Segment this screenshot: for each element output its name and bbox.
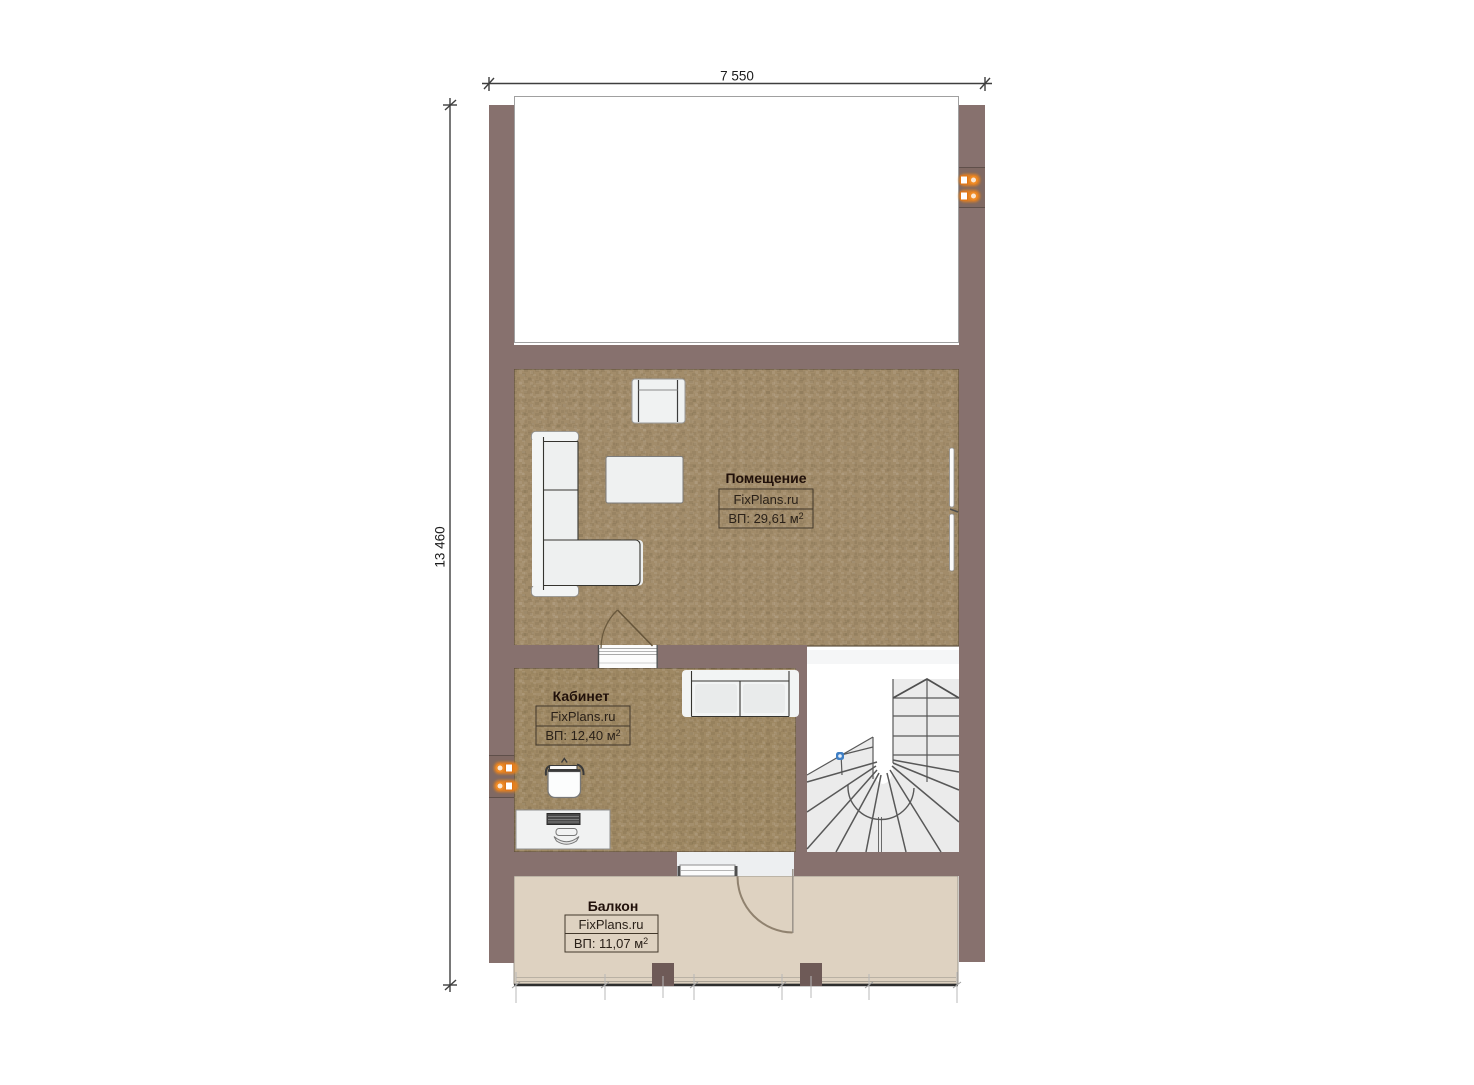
- svg-text:ВП: 29,61 м2: ВП: 29,61 м2: [728, 511, 803, 526]
- svg-text:Помещение: Помещение: [725, 470, 806, 486]
- svg-text:13 460: 13 460: [433, 526, 448, 567]
- svg-text:ВП: 12,40 м2: ВП: 12,40 м2: [545, 728, 620, 743]
- svg-text:FixPlans.ru: FixPlans.ru: [550, 709, 615, 724]
- svg-text:ВП: 11,07 м2: ВП: 11,07 м2: [574, 936, 648, 951]
- svg-text:Балкон: Балкон: [588, 898, 639, 914]
- svg-text:FixPlans.ru: FixPlans.ru: [578, 917, 643, 932]
- svg-text:FixPlans.ru: FixPlans.ru: [733, 492, 798, 507]
- svg-text:Кабинет: Кабинет: [553, 688, 610, 704]
- svg-text:7 550: 7 550: [720, 69, 754, 84]
